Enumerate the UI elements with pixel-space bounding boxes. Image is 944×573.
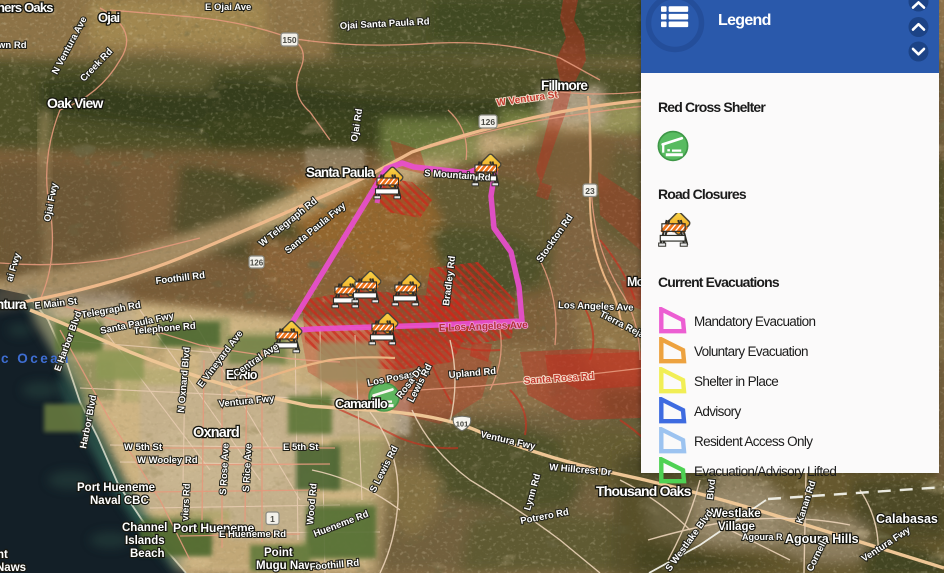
svg-text:1: 1 xyxy=(270,514,275,524)
svg-text:E Hueneme Rd: E Hueneme Rd xyxy=(219,529,286,540)
svg-text:Thousand Oaks: Thousand Oaks xyxy=(596,483,692,499)
svg-text:Point: Point xyxy=(264,547,293,559)
svg-text:W Wooley Rd: W Wooley Rd xyxy=(137,455,198,466)
svg-text:Santa Paula: Santa Paula xyxy=(306,165,375,180)
svg-text:Oak View: Oak View xyxy=(47,95,104,111)
svg-text:ners Oaks: ners Oaks xyxy=(0,0,53,15)
svg-text:Naws: Naws xyxy=(0,562,26,573)
svg-text:Blvd: Blvd xyxy=(705,478,718,500)
svg-text:Oxnard: Oxnard xyxy=(193,425,239,441)
svg-text:126: 126 xyxy=(481,117,495,127)
svg-text:Islands: Islands xyxy=(125,535,165,547)
svg-text:101: 101 xyxy=(456,420,469,429)
svg-text:W 5th St: W 5th St xyxy=(124,442,163,453)
svg-text:150: 150 xyxy=(282,35,296,45)
svg-text:Ojai: Ojai xyxy=(98,10,120,25)
svg-text:Channel: Channel xyxy=(122,522,167,534)
svg-text:E Ojai Ave: E Ojai Ave xyxy=(205,2,251,13)
svg-text:Westlake: Westlake xyxy=(711,508,761,520)
svg-text:viers Rd: viers Rd xyxy=(180,483,193,521)
svg-text:Agoura R: Agoura R xyxy=(742,532,783,542)
svg-text:wn Rd: wn Rd xyxy=(0,40,27,51)
svg-text:23: 23 xyxy=(585,186,595,196)
svg-text:ntura: ntura xyxy=(0,297,27,312)
svg-text:Camarillo: Camarillo xyxy=(335,396,388,411)
svg-text:nt: nt xyxy=(0,549,8,561)
svg-text:Calabasas: Calabasas xyxy=(876,512,938,526)
svg-text:E 5th St: E 5th St xyxy=(283,442,319,453)
svg-text:Beach: Beach xyxy=(130,548,165,560)
svg-text:Port Hueneme: Port Hueneme xyxy=(77,482,155,494)
svg-text:126: 126 xyxy=(250,259,264,268)
svg-text:Naval CBC: Naval CBC xyxy=(90,495,149,507)
